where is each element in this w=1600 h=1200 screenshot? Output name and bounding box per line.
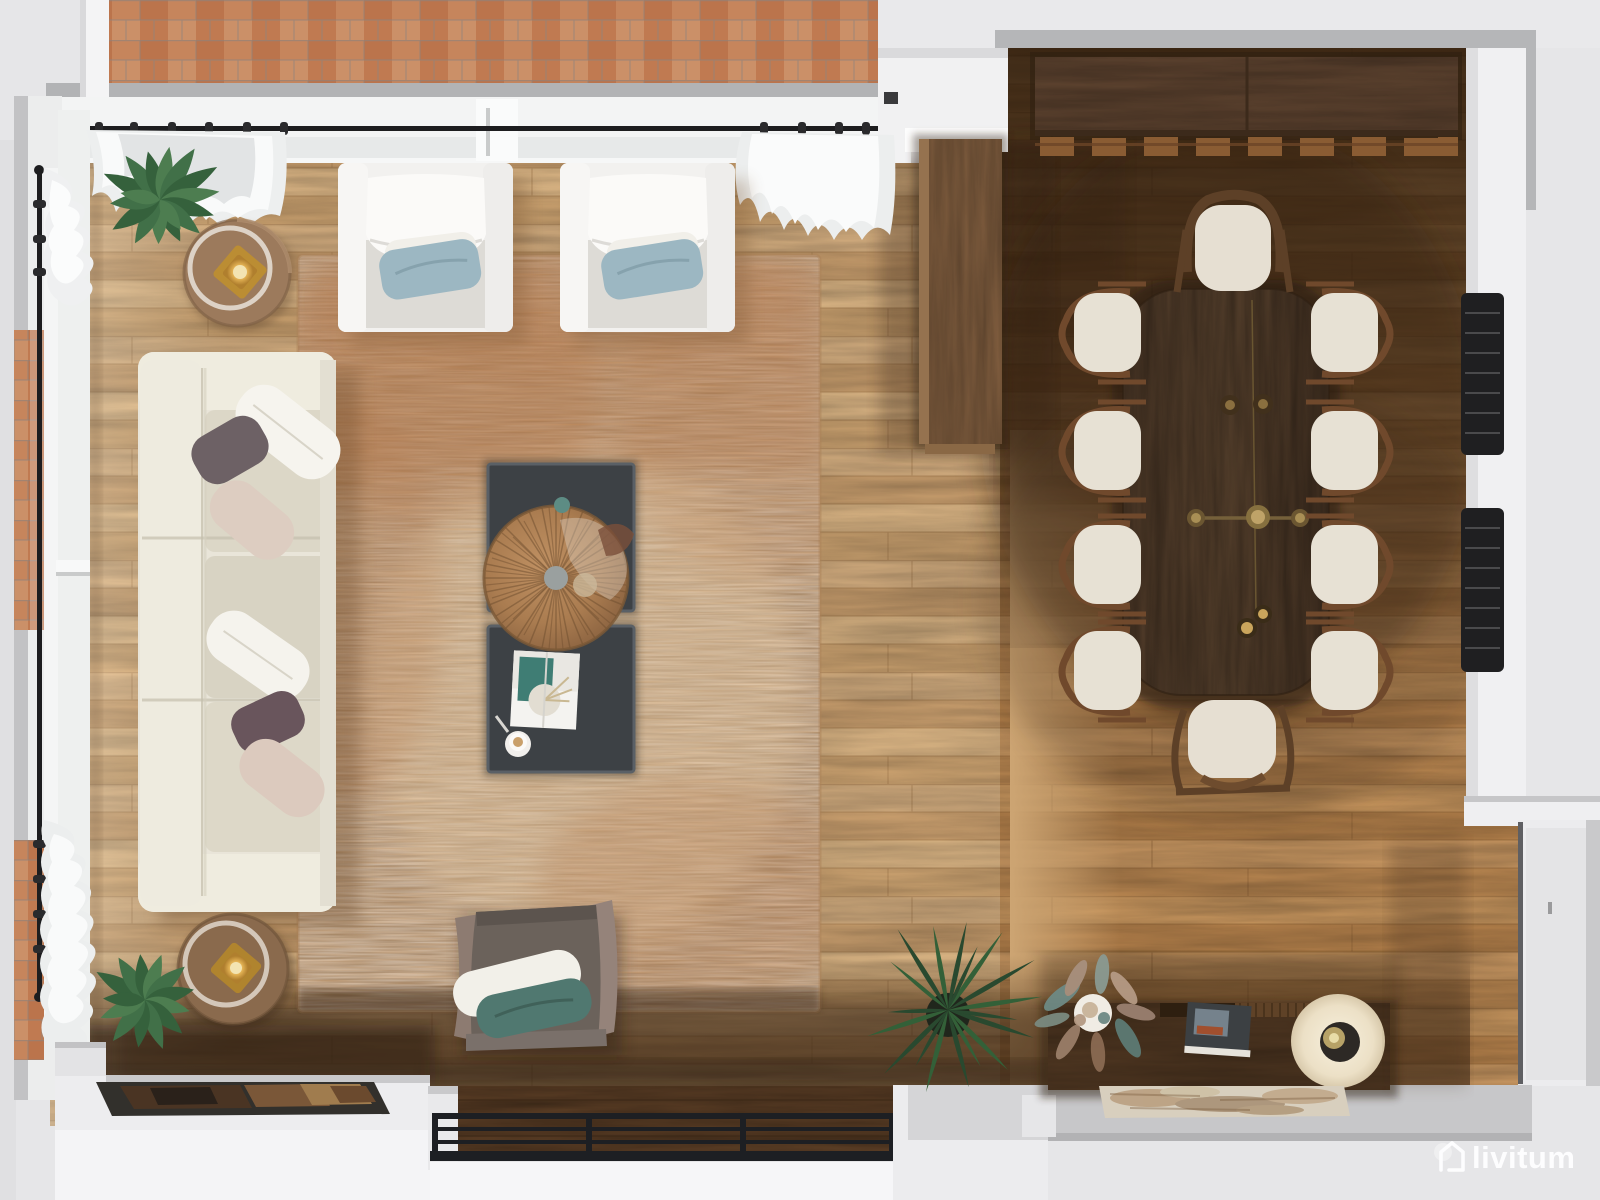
svg-text:livitum: livitum — [1472, 1140, 1575, 1175]
